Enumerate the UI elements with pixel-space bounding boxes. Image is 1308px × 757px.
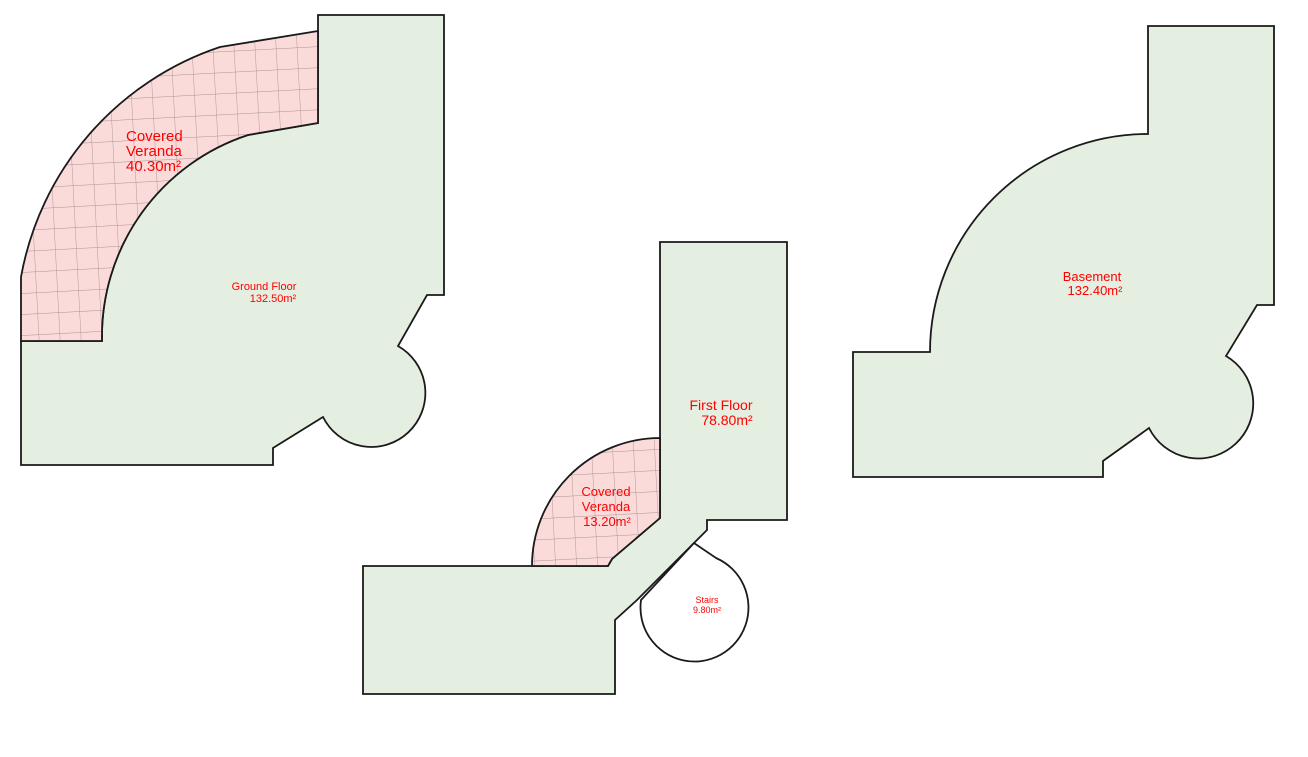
veranda-label-area: 40.30m² (126, 158, 181, 175)
floor-plan-canvas: Covered Veranda 40.30m² Ground Floor 132… (0, 0, 1308, 757)
stairs-area: 9.80m² (693, 605, 721, 615)
first-floor-plan: First Floor 78.80m² Covered Veranda 13.2… (363, 242, 787, 694)
stairs-name: Stairs (695, 595, 719, 605)
basement-label: Basement 132.40m² (1063, 269, 1123, 298)
ground-floor-veranda-label: Covered Veranda 40.30m² (126, 128, 183, 175)
basement-area: 132.40m² (1068, 283, 1124, 298)
first-floor-veranda-label: Covered Veranda 13.20m² (581, 484, 631, 529)
first-floor-name: First Floor (690, 397, 753, 413)
first-floor-area: 78.80m² (701, 412, 753, 428)
ground-floor-area: 132.50m² (250, 293, 297, 305)
floor-plan-drawing: Covered Veranda 40.30m² Ground Floor 132… (0, 0, 1308, 757)
ground-floor-plan: Covered Veranda 40.30m² Ground Floor 132… (21, 15, 444, 465)
basement-plan: Basement 132.40m² (853, 26, 1274, 477)
veranda-label-line1: Covered (581, 484, 630, 499)
basement-name: Basement (1063, 269, 1122, 284)
basement-shape (853, 26, 1274, 477)
veranda-label-area: 13.20m² (583, 514, 631, 529)
veranda-label-line2: Veranda (582, 499, 631, 514)
ground-floor-name: Ground Floor (232, 281, 297, 293)
stairs-label: Stairs 9.80m² (693, 595, 721, 615)
